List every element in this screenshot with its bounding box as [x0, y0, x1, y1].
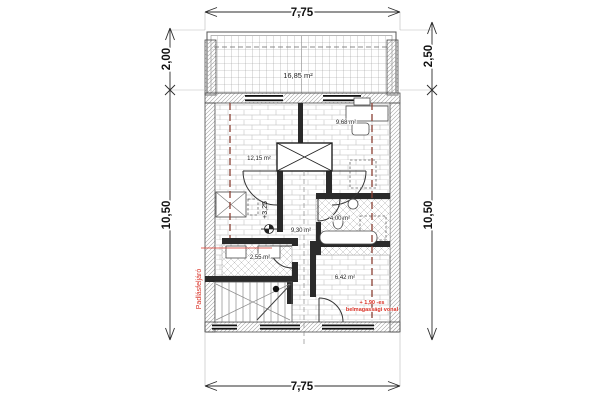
dimension-right-upper-label: 2,50 [423, 45, 435, 67]
window-icon [245, 95, 283, 97]
bathroom-label: 4,00 m² [330, 216, 350, 222]
window-icon [212, 325, 237, 327]
dimension-right: 2,50 10,50 [400, 22, 437, 340]
room-left-label: 12,15 m² [247, 156, 271, 162]
terrace-left-wall [205, 40, 216, 95]
height-line-label-2: belmagassági vonal [346, 307, 399, 313]
level-mark-label: +3,25 [262, 201, 269, 219]
bottom-wall-windows [212, 324, 374, 330]
hall-label: 9,30 m² [291, 228, 311, 234]
dimension-left-upper-label: 2,00 [161, 48, 173, 70]
window-icon [260, 325, 300, 327]
chimney-shaft [277, 143, 332, 171]
dimension-top-label: 7,75 [291, 7, 314, 19]
terrace-right-wall [387, 40, 398, 95]
right-wall [390, 103, 400, 332]
bottom-room-label: 6,42 m² [335, 275, 355, 281]
dimension-bottom: 7,75 [205, 332, 400, 393]
terrace-area: 16,85 m² [205, 32, 398, 95]
floor-plan-sheet: 16,85 m² [0, 0, 600, 400]
stair-newel-post [273, 286, 279, 292]
terrace-area-label: 16,85 m² [283, 71, 313, 80]
dimension-top: 7,75 [205, 7, 400, 30]
top-wall [205, 93, 400, 103]
height-line-label-1: + 1,90 -es [360, 300, 385, 306]
room-right-label: 9,68 m² [336, 120, 356, 126]
sink-icon [348, 199, 358, 209]
dimension-bottom-label: 7,75 [291, 381, 314, 393]
dimension-left-main-label: 10,50 [161, 201, 173, 230]
floor-plan-drawing: 16,85 m² [0, 0, 600, 400]
dimension-right-main-label: 10,50 [423, 201, 435, 230]
left-wall [205, 103, 215, 332]
window-icon [322, 325, 374, 327]
bathtub-icon [320, 231, 377, 244]
window-icon [323, 95, 361, 97]
attic-stairs-label: Padlásfeljáró [196, 269, 203, 310]
storage-label: 2,55 m² [250, 255, 270, 261]
